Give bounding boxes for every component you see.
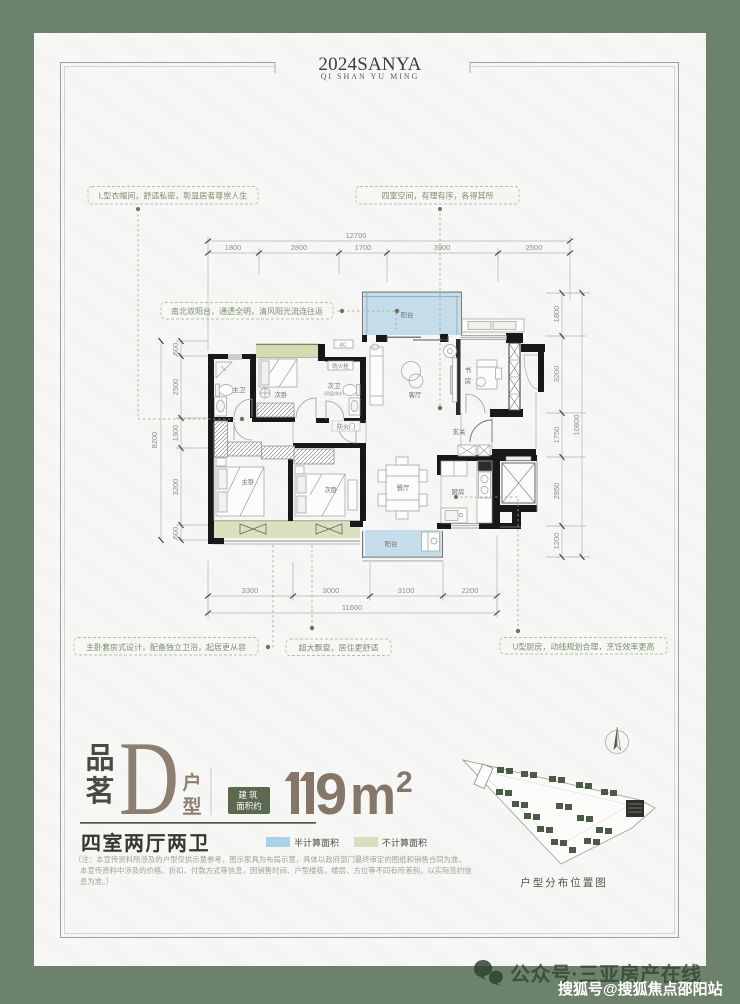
svg-text:2200: 2200 [462, 586, 479, 595]
svg-text:600: 600 [171, 343, 180, 356]
svg-text:11600: 11600 [342, 603, 362, 612]
svg-text:3200: 3200 [552, 366, 561, 383]
svg-text:主卧: 主卧 [242, 477, 256, 486]
svg-text:主卫: 主卫 [233, 385, 247, 394]
svg-text:建筑: 建筑 [238, 790, 259, 800]
svg-text:12700: 12700 [346, 231, 367, 240]
svg-text:1750: 1750 [552, 427, 561, 444]
svg-text:2500: 2500 [171, 379, 180, 396]
svg-text:不计算面积: 不计算面积 [382, 837, 427, 848]
svg-text:南北双阳台，通透全明，清风阳光流连往返: 南北双阳台，通透全明，清风阳光流连往返 [171, 306, 323, 316]
svg-text:品: 品 [85, 743, 114, 775]
svg-text:2: 2 [396, 766, 413, 799]
svg-text:3000: 3000 [323, 586, 340, 595]
svg-text:1800: 1800 [225, 243, 242, 252]
svg-text:3200: 3200 [171, 479, 180, 496]
svg-text:息为准。）: 息为准。） [80, 877, 113, 886]
svg-text:本宣传资料中涉及的价格、折扣、付款方式等信息，因销售时间、户: 本宣传资料中涉及的价格、折扣、付款方式等信息，因销售时间、户型楼栋、楼层、方位等… [80, 866, 472, 875]
svg-text:玄关: 玄关 [453, 427, 467, 436]
svg-text:四室两厅两卫: 四室两厅两卫 [81, 831, 210, 855]
svg-text:（注：本宣传资料所涉及的户型仅供示意参考，图示家具为布局示意: （注：本宣传资料所涉及的户型仅供示意参考，图示家具为布局示意，具体以政府部门最终… [74, 855, 466, 864]
svg-text:(同层排水): (同层排水) [324, 390, 344, 397]
svg-text:1300: 1300 [171, 425, 180, 442]
svg-text:书: 书 [465, 365, 472, 374]
svg-text:超大飘窗，居住更舒适: 超大飘窗，居住更舒适 [299, 643, 379, 653]
svg-text:U型厨房，动线规划合理，烹饪效率更高: U型厨房，动线规划合理，烹饪效率更高 [513, 642, 655, 652]
svg-text:10800: 10800 [572, 415, 581, 436]
svg-text:1200: 1200 [552, 533, 561, 550]
svg-text:m: m [350, 764, 396, 826]
svg-text:次卧: 次卧 [325, 485, 339, 494]
svg-text:3100: 3100 [398, 586, 415, 595]
svg-text:阳台: 阳台 [385, 539, 398, 548]
svg-text:2850: 2850 [552, 483, 561, 500]
svg-text:3900: 3900 [434, 243, 451, 252]
svg-text:9: 9 [315, 762, 347, 827]
svg-text:8200: 8200 [150, 432, 159, 449]
svg-text:防火栓: 防火栓 [332, 362, 349, 370]
svg-text:客厅: 客厅 [409, 390, 423, 399]
svg-text:阳台: 阳台 [401, 310, 414, 319]
svg-text:次卧: 次卧 [275, 390, 289, 399]
svg-text:1700: 1700 [355, 243, 372, 252]
svg-text:QI SHAN YU MING: QI SHAN YU MING [321, 72, 420, 81]
svg-text:房: 房 [465, 376, 472, 385]
svg-text:半计算面积: 半计算面积 [294, 837, 339, 848]
svg-text:餐厅: 餐厅 [397, 483, 411, 492]
svg-text:型: 型 [182, 795, 201, 818]
svg-text:主卧套房式设计，配备独立卫浴，起居更从容: 主卧套房式设计，配备独立卫浴，起居更从容 [86, 642, 246, 652]
svg-text:面积约: 面积约 [236, 801, 262, 811]
svg-text:2500: 2500 [526, 243, 543, 252]
svg-text:AC: AC [340, 343, 347, 349]
svg-text:厨房: 厨房 [452, 487, 465, 496]
svg-text:3300: 3300 [242, 586, 259, 595]
svg-text:户: 户 [182, 771, 201, 794]
svg-text:D: D [119, 720, 179, 837]
svg-text:户型分布位置图: 户型分布位置图 [520, 876, 608, 889]
svg-text:2800: 2800 [291, 243, 308, 252]
svg-text:600: 600 [171, 527, 180, 540]
svg-text:1800: 1800 [552, 306, 561, 323]
svg-text:L型衣帽间，舒适私密，彰显居者尊崇人生: L型衣帽间，舒适私密，彰显居者尊崇人生 [99, 191, 247, 201]
svg-text:茗: 茗 [85, 775, 114, 808]
svg-text:防火门: 防火门 [337, 423, 355, 431]
svg-text:四室空间，有理有序，各得其所: 四室空间，有理有序，各得其所 [382, 191, 494, 201]
svg-text:次卫: 次卫 [328, 381, 342, 390]
svg-text:搜狐号@搜狐焦点邵阳站: 搜狐号@搜狐焦点邵阳站 [558, 980, 723, 998]
